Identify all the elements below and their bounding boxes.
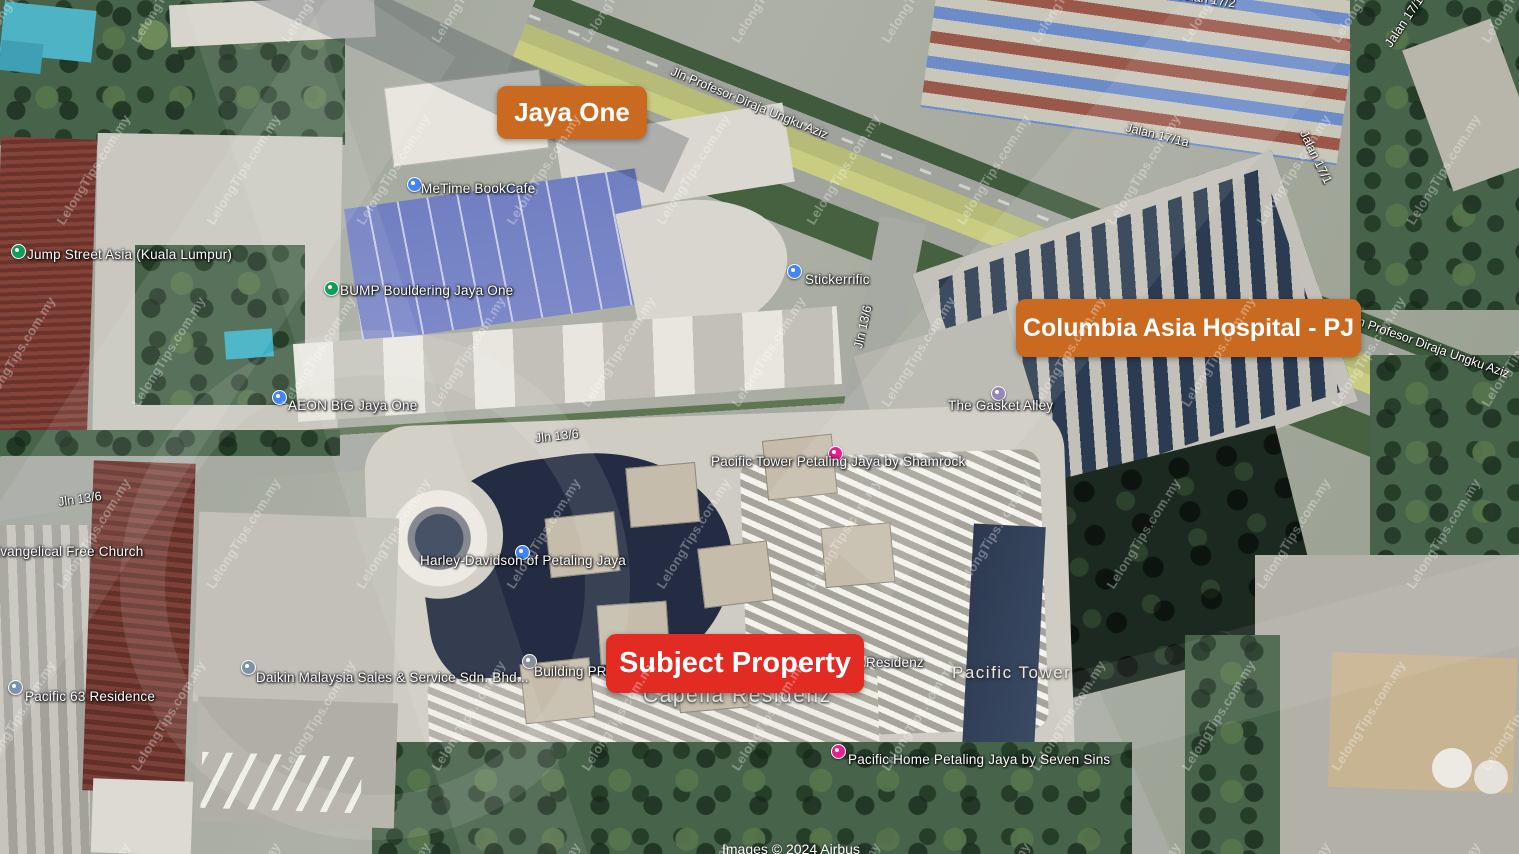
sat-tower-roof — [545, 511, 621, 578]
satellite-map-canvas[interactable]: Jump Street Asia (Kuala Lumpur)MeTime Bo… — [0, 0, 1519, 854]
sat-tank-1 — [1432, 748, 1472, 788]
annotation-columbia-asia-hospital: Columbia Asia Hospital - PJ — [1016, 299, 1361, 357]
sat-residential-top-right — [921, 0, 1360, 165]
poi-label-metime-bookcafe[interactable]: MeTime BookCafe — [421, 181, 535, 196]
sat-trees-col-right — [1185, 635, 1280, 854]
sat-tower-roof — [821, 522, 896, 588]
sat-truck-yard — [194, 697, 398, 829]
poi-pin-stickerrific[interactable] — [787, 264, 802, 279]
sat-white-section — [91, 778, 194, 854]
place-label-pacific-tower[interactable]: Pacific Tower — [952, 663, 1071, 683]
poi-pin-jump-street-asia-kuala-lumpur[interactable] — [11, 244, 26, 259]
sat-tower-roof — [625, 462, 700, 528]
poi-label-evangelical-free-church[interactable]: Evangelical Free Church — [0, 544, 143, 559]
annotation-jaya-one: Jaya One — [497, 86, 647, 139]
poi-label-pacific-home-petaling-jaya-by-se[interactable]: Pacific Home Petaling Jaya by Seven Sins — [848, 752, 1110, 767]
sat-tower-roof — [697, 540, 774, 608]
sat-pool-top-left-2 — [0, 40, 43, 74]
watermark-text: LelongTips.com.my — [728, 0, 808, 45]
poi-pin-daikin-malaysia-sales-service-sd[interactable] — [241, 660, 256, 675]
poi-label-the-gasket-alley[interactable]: The Gasket Alley — [948, 398, 1053, 413]
poi-pin-pacific-63-residence[interactable] — [8, 680, 23, 695]
sat-trees-above-road-left — [0, 430, 340, 456]
watermark-text: LelongTips.com.my — [203, 840, 283, 854]
poi-pin-metime-bookcafe[interactable] — [407, 177, 422, 192]
poi-pin-bump-bouldering-jaya-one[interactable] — [324, 281, 339, 296]
poi-label-stickerrific[interactable]: Stickerrific — [805, 272, 870, 287]
poi-label-daikin-malaysia-sales-service-sd[interactable]: Daikin Malaysia Sales & Service Sdn. Bhd… — [256, 670, 529, 685]
poi-label-bump-bouldering-jaya-one[interactable]: BUMP Bouldering Jaya One — [340, 283, 513, 298]
poi-label-pacific-tower-petaling-jaya-by-s[interactable]: Pacific Tower Petaling Jaya by Shamrock — [711, 454, 965, 469]
poi-label-jump-street-asia-kuala-lumpur[interactable]: Jump Street Asia (Kuala Lumpur) — [27, 247, 232, 262]
imagery-attribution: Images © 2024 Airbus — [722, 841, 860, 854]
poi-label-pacific-63-residence[interactable]: Pacific 63 Residence — [25, 689, 155, 704]
annotation-subject-property: Subject Property — [606, 634, 864, 693]
poi-pin-pacific-home-petaling-jaya-by-se[interactable] — [831, 744, 846, 759]
poi-label-aeon-big-jaya-one[interactable]: AEON BiG Jaya One — [288, 398, 417, 413]
poi-label-harley-davidson-of-petaling-jaya[interactable]: Harley-Davidson of Petaling Jaya — [420, 553, 626, 568]
sat-tank-2 — [1474, 760, 1508, 794]
sat-maroon-roof — [82, 460, 195, 793]
sat-courtyard-pool — [224, 328, 274, 359]
sat-red-warehouse-top — [0, 136, 97, 439]
poi-pin-aeon-big-jaya-one[interactable] — [272, 390, 287, 405]
sat-park-feature — [138, 20, 168, 50]
sat-jaya-courtyard — [135, 245, 305, 405]
poi-label-residenz[interactable]: Residenz — [866, 655, 924, 670]
